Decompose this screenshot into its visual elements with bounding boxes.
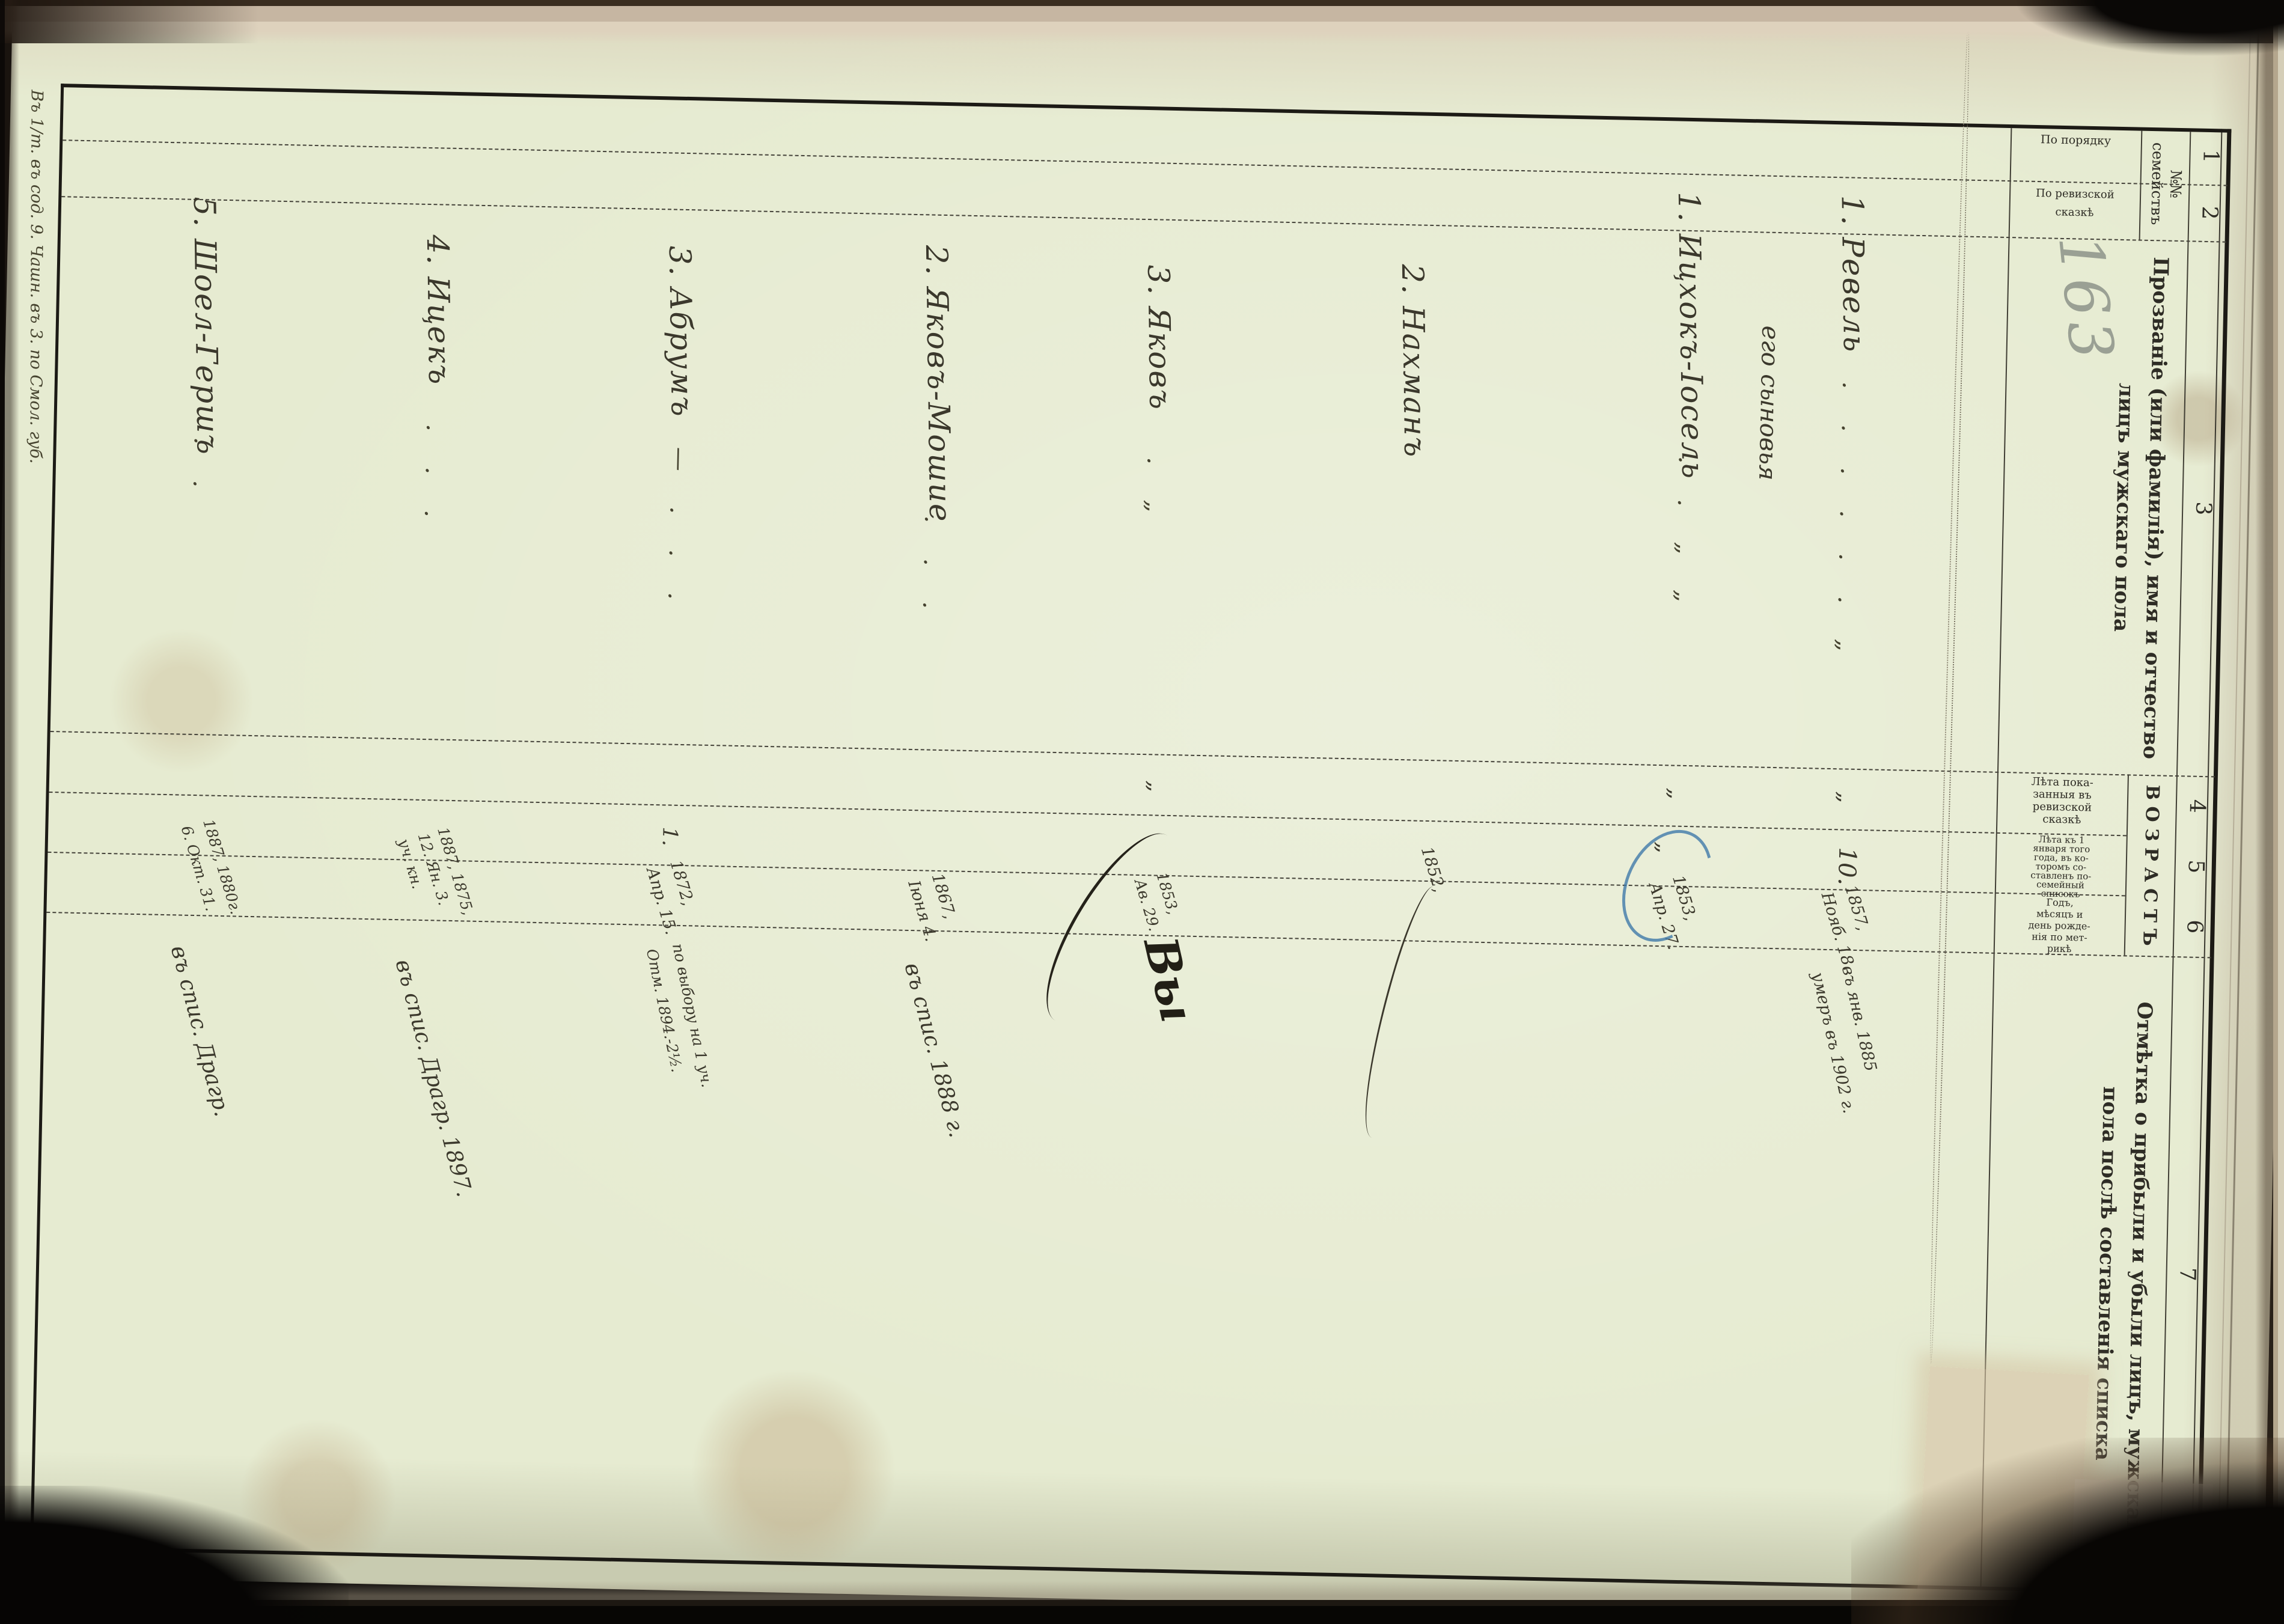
under-page-edge-line xyxy=(2224,0,2260,1623)
entry-leader-dots: . . . . . . „ xyxy=(1831,381,1865,655)
entry-remark: въ спис. 1888 г. xyxy=(899,960,969,1140)
column-number-5: 5 xyxy=(2183,836,2209,897)
entry-leader-dots: . . . xyxy=(419,424,448,522)
entry-remark: въ янв. 1885 умеръ въ 1902 г. xyxy=(1802,962,1894,1116)
entry-birth-date: 1857, Нояб. 18. xyxy=(1815,882,1884,974)
entry-leader-dots: . . xyxy=(188,437,216,492)
entry-leader-dots: . . „ „ xyxy=(1670,456,1701,606)
pen-flourish xyxy=(1347,882,1459,1142)
entry-name: 3. Абрумъ xyxy=(662,245,700,418)
column-number-1: 1 xyxy=(2197,126,2223,187)
column-line-1 xyxy=(63,139,2227,186)
header-age-january: Лѣта къ 1 января того года, въ ко- тором… xyxy=(1997,834,2125,894)
entry-remark: въ спис. Драгр. 1897. xyxy=(390,957,477,1200)
entry-departed-mark: Вы xyxy=(1134,932,1205,1027)
entry-name: 4. Ицекъ xyxy=(420,234,457,386)
register-sheet: 1 2 3 4 5 6 7 №№ семействъ По порядку По… xyxy=(0,0,2284,1623)
header-age-group: В О З Р А С Т Ъ xyxy=(2139,775,2163,956)
column-number-2: 2 xyxy=(2197,183,2223,243)
entry-birth-date: 1867, Іюня 4. xyxy=(902,870,966,944)
paper-repair-patch xyxy=(2070,1479,2213,1605)
entry-name: 1. Ицхокъ-Іосель xyxy=(1672,192,1711,480)
entry-name: 2. Нахманъ xyxy=(1395,264,1433,459)
entry-age-revision: „ xyxy=(1143,780,1170,793)
entry-sons-label: его сыновья xyxy=(1753,325,1784,481)
blue-pencil-circle xyxy=(1605,815,1730,956)
entry-name: 2. Яковъ-Мошие xyxy=(919,245,957,522)
header-birth-date: Годъ, мѣсяцъ и день рожде- нія по мет- р… xyxy=(1996,896,2124,953)
header-age-revision: Лѣта пока- занныя въ ревизской сказкѣ xyxy=(1998,775,2126,833)
header-by-order: По порядку xyxy=(2012,132,2140,183)
entry-birth-date: 1872, Апр. 15. xyxy=(640,857,706,938)
table-frame-right xyxy=(30,1546,2200,1595)
entry-remark: въ спис. Драгр. xyxy=(166,943,234,1119)
entry-age-revision: „ xyxy=(1664,787,1690,800)
header-by-revision: По ревизской сказкѣ xyxy=(2011,184,2139,238)
under-page-edge-highlight xyxy=(2216,0,2252,1623)
scanned-register-page: { "document": { "pencil_number": "163", … xyxy=(0,0,2284,1624)
entry-age-values: 1887, 1880г. 6. Окт. 31. xyxy=(176,816,247,923)
entry-name: 5. Шоел-Гершъ xyxy=(187,197,225,456)
entry-leader-dots: . „ xyxy=(1141,457,1170,516)
margin-note: Въ 1/т. въ сод. 9. Чашн. въ 3. по Смол. … xyxy=(26,90,46,463)
entry-age-values: 1887, 1875, 12. Ян. 3. уч. кн. xyxy=(394,825,478,929)
header-family-numbers: №№ семействъ xyxy=(2142,127,2187,240)
column-line-4 xyxy=(49,792,2127,836)
table-frame-left xyxy=(61,84,2231,133)
column-number-6: 6 xyxy=(2182,896,2208,957)
entry-name: 1. Ревель xyxy=(1834,195,1872,353)
entry-name: 3. Яковъ xyxy=(1141,264,1177,411)
entry-leader-dots: . . . xyxy=(917,515,947,613)
column-number-4: 4 xyxy=(2184,775,2210,837)
column-line-3 xyxy=(50,731,2215,777)
column-line-5 xyxy=(47,852,2125,896)
entry-age-january: 10. xyxy=(1833,847,1861,886)
entry-age-january: 1. xyxy=(658,826,682,846)
column-line-2 xyxy=(61,196,2226,242)
paper-stain-patch xyxy=(1917,1366,2089,1603)
pencil-folio-number: 163 xyxy=(2045,231,2128,367)
entry-age-revision: „ xyxy=(1833,791,1860,804)
page-fold-line xyxy=(1928,18,1973,1364)
entry-remark: по выбору на 1 уч. Отм. 1894.-2½. xyxy=(638,941,720,1096)
entry-leader-dots: — . . . xyxy=(662,447,693,603)
